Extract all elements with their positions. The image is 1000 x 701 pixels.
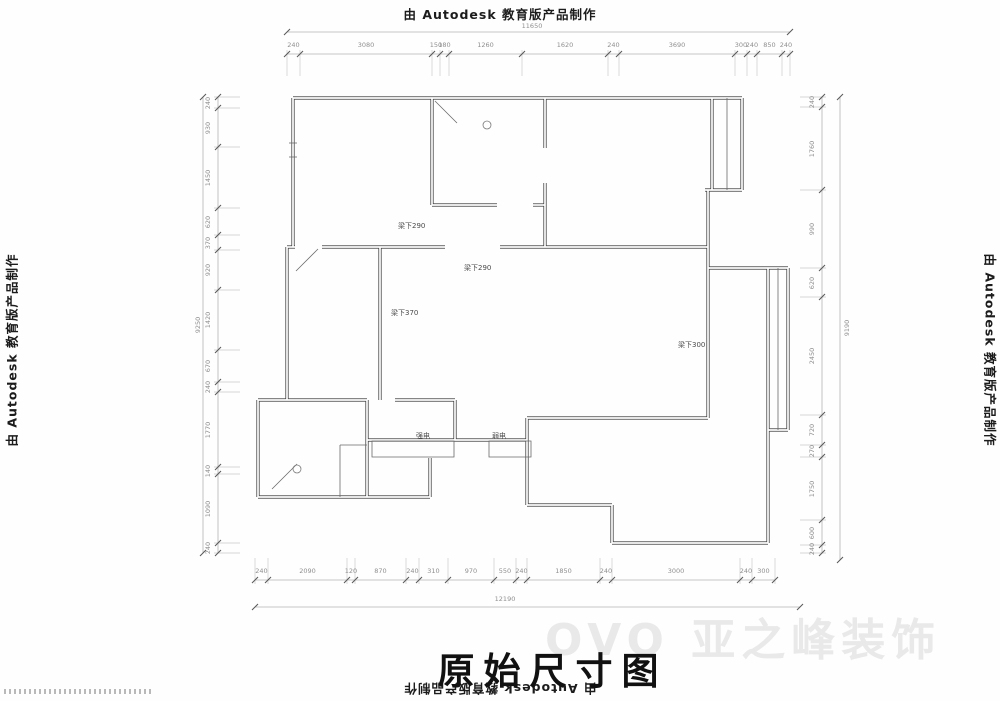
dimension-label: 240	[287, 41, 299, 49]
dimension-label: 240	[780, 41, 792, 49]
dimension-label: 550	[499, 567, 511, 575]
annotation-overlay: 由 Autodesk 教育版产品制作 由 Autodesk 教育版产品制作 由 …	[0, 0, 1000, 701]
dimension-label: 1850	[555, 567, 572, 575]
dimension-label: 240	[204, 542, 212, 554]
dimension-label: 180	[438, 41, 450, 49]
dimension-label: 1750	[808, 480, 816, 497]
dimension-label: 310	[427, 567, 439, 575]
dimension-label: 9190	[843, 320, 851, 337]
strong-electric-label: 强电	[416, 431, 430, 441]
dimension-label: 240	[808, 96, 816, 108]
dimension-label: 3080	[358, 41, 375, 49]
dimension-label: 920	[204, 264, 212, 276]
dimension-label: 1620	[557, 41, 574, 49]
dimension-label: 2450	[808, 348, 816, 365]
dimension-label: 11650	[522, 22, 543, 30]
dimension-label: 240	[204, 96, 212, 108]
dimension-label: 1770	[204, 421, 212, 438]
dimension-label: 240	[808, 543, 816, 555]
fine-print-illegible	[4, 689, 152, 694]
dimension-label: 930	[204, 121, 212, 133]
dimension-label: 1090	[204, 500, 212, 517]
dimension-label: 3000	[668, 567, 685, 575]
dimension-label: 620	[808, 276, 816, 288]
dimension-label: 600	[808, 526, 816, 538]
dimension-label: 970	[465, 567, 477, 575]
autodesk-watermark-left: 由 Autodesk 教育版产品制作	[2, 253, 21, 446]
dimension-label: 1450	[204, 169, 212, 186]
dimension-label: 240	[746, 41, 758, 49]
dimension-label: 670	[204, 360, 212, 372]
dimension-label: 720	[808, 424, 816, 436]
dimension-label: 1760	[808, 140, 816, 157]
dimension-label: 370	[204, 236, 212, 248]
beam-height-label: 梁下290	[398, 221, 425, 231]
autodesk-watermark-top: 由 Autodesk 教育版产品制作	[0, 4, 1000, 23]
dimension-label: 1420	[204, 312, 212, 329]
dimension-label: 270	[808, 445, 816, 457]
dimension-label: 850	[763, 41, 775, 49]
dimension-label: 300	[757, 567, 769, 575]
drawing-title: 原始尺寸图	[380, 641, 725, 695]
dimension-label: 870	[374, 567, 386, 575]
dimension-label: 120	[345, 567, 357, 575]
dimension-label: 9250	[194, 317, 202, 334]
dimension-label: 620	[204, 215, 212, 227]
dimension-label: 2090	[299, 567, 316, 575]
dimension-label: 240	[204, 381, 212, 393]
dimension-label: 12190	[495, 595, 516, 603]
beam-height-label: 梁下290	[464, 263, 491, 273]
dimension-label: 1260	[477, 41, 494, 49]
beam-height-label: 梁下370	[391, 308, 418, 318]
dimension-label: 3690	[669, 41, 686, 49]
autodesk-watermark-right: 由 Autodesk 教育版产品制作	[982, 253, 1000, 446]
weak-electric-label: 弱电	[492, 431, 506, 441]
dimension-label: 990	[808, 223, 816, 235]
dimension-label: 240	[515, 567, 527, 575]
beam-height-label: 梁下300	[678, 340, 705, 350]
dimension-label: 240	[740, 567, 752, 575]
dimension-label: 240	[255, 567, 267, 575]
dimension-label: 240	[600, 567, 612, 575]
dimension-label: 240	[406, 567, 418, 575]
cad-floorplan-page: 由 Autodesk 教育版产品制作 由 Autodesk 教育版产品制作 由 …	[0, 0, 1000, 701]
dimension-label: 240	[607, 41, 619, 49]
dimension-label: 140	[204, 464, 212, 476]
